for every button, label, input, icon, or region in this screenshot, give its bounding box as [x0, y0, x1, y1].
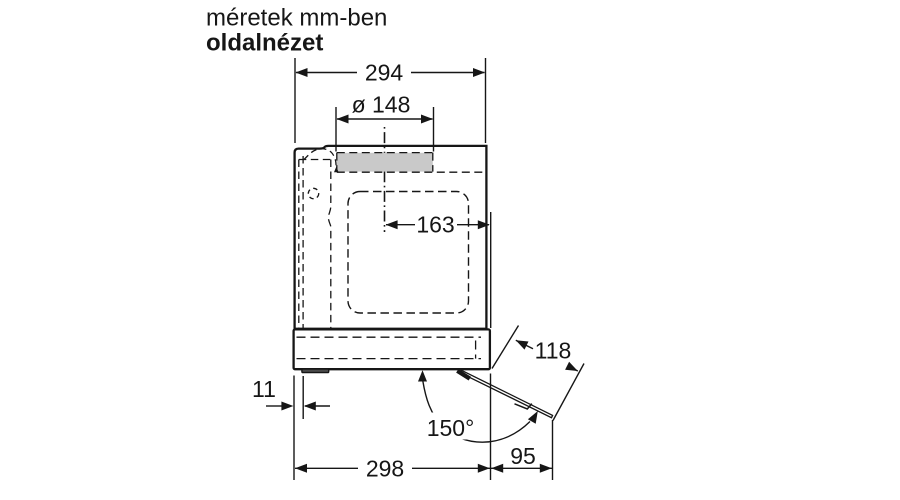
- svg-text:118: 118: [535, 338, 572, 364]
- svg-text:95: 95: [510, 443, 536, 469]
- svg-text:150°: 150°: [427, 415, 475, 441]
- svg-text:oldalnézet: oldalnézet: [206, 30, 323, 57]
- svg-text:294: 294: [365, 60, 404, 86]
- svg-text:163: 163: [416, 212, 454, 238]
- svg-text:298: 298: [366, 455, 404, 481]
- svg-text:11: 11: [252, 376, 276, 402]
- svg-text:ø 148: ø 148: [352, 92, 411, 118]
- svg-text:méretek mm-ben: méretek mm-ben: [206, 5, 387, 32]
